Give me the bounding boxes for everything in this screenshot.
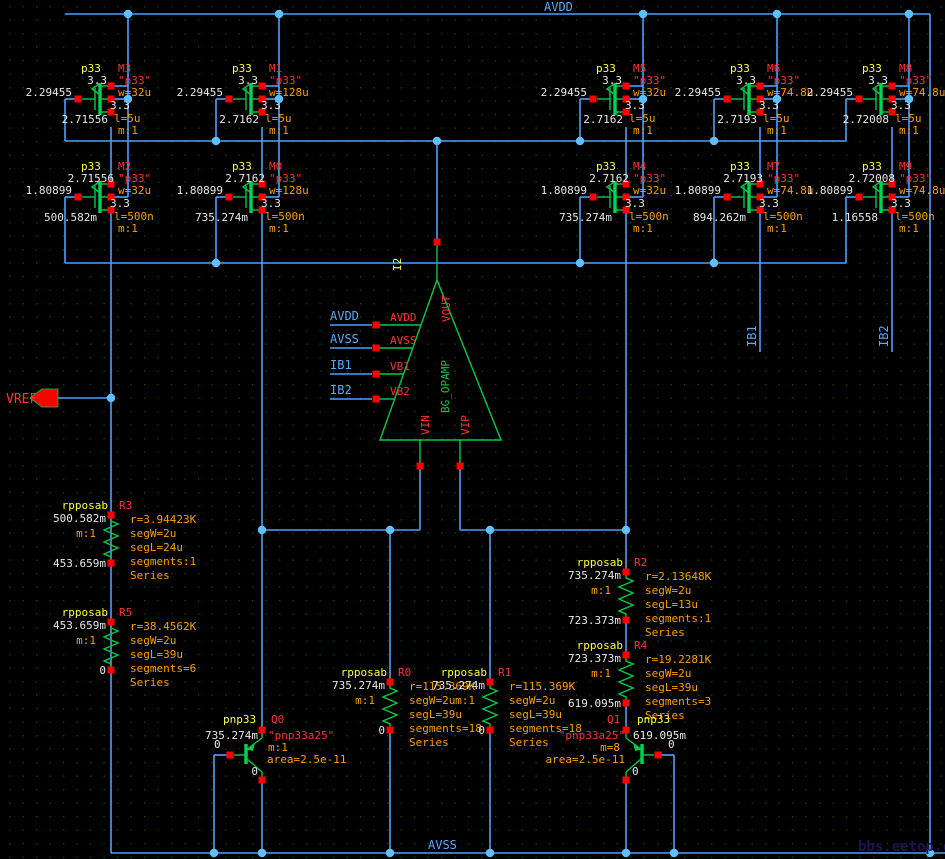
m-param: m:1 [633,124,653,137]
res-bot-pin[interactable] [623,617,630,624]
instance-label: R3 [119,499,132,512]
pin-label-vip: VIP [459,415,472,435]
v-annotation: 0 [99,664,106,677]
collector-pin[interactable] [259,777,266,784]
segments-param: segments:1 [645,612,711,625]
segl-param: segL=39u [409,708,462,721]
v-annotation: 3.3 [87,74,107,87]
r-param: r=38.4562K [130,620,197,633]
base-v-annotation: 0 [214,738,221,751]
gate-v-annotation: 1.80899 [541,184,587,197]
source-pin[interactable] [259,83,266,90]
pin-label-vb2: VB2 [390,385,410,398]
instance-label: R2 [634,556,647,569]
m-param: m:1 [118,222,138,235]
instance-label: R1 [498,666,511,679]
gate-pin[interactable] [856,96,863,103]
m-param: m:1 [767,222,787,235]
w-param: w=32u [633,86,666,99]
segw-param: segW=2u [645,667,691,680]
instance-label: Q0 [271,713,284,726]
segments-param: segments=3 [645,695,711,708]
net-label-ib2: IB2 [330,383,352,397]
w-param: w=128u [269,184,309,197]
cell-label: BG_OPAMP [439,360,452,413]
instance-label: R0 [398,666,411,679]
gate-pin[interactable] [724,96,731,103]
avdd-rail-label: AVDD [544,0,573,14]
vref-pin[interactable]: VREF [6,389,58,407]
cell-label: rpposab [441,666,487,679]
v-annotation: 735.274m [432,679,485,692]
res-bot-pin[interactable] [487,727,494,734]
r-param: r=19.2281K [645,653,712,666]
vb2-pin[interactable] [373,396,380,403]
pin-label-vin: VIN [419,415,432,435]
segw-param: segW=2u [130,634,176,647]
res-top-pin[interactable] [108,512,115,519]
cell-label: rpposab [62,606,108,619]
v-annotation: 453.659m [53,557,106,570]
r-param: r=2.13648K [645,570,712,583]
gate-v-annotation: 1.80899 [177,184,223,197]
cell-label: rpposab [577,639,623,652]
w-param: w=32u [633,184,666,197]
segw-param: segW=2u [409,694,455,707]
m-param: m:1 [269,222,289,235]
base-v-annotation: 0 [668,738,675,751]
series-param: Series [130,569,170,582]
instance-label: I2 [391,258,404,271]
gate-v-annotation: 2.29455 [675,86,721,99]
net-label-avss: AVSS [330,332,359,346]
vout-pin[interactable] [434,239,441,246]
res-bot-pin[interactable] [108,667,115,674]
ib1-net-label: IB1 [745,325,759,347]
series-param: Series [509,736,549,749]
v-annotation: 2.7193 [723,172,763,185]
net-label-avdd: AVDD [330,309,359,323]
m-param: m:1 [591,667,611,680]
source-pin[interactable] [757,83,764,90]
m-param: m:1 [269,124,289,137]
drain-v-annotation: 1.16558 [832,211,878,224]
bulk-v-annotation: 3.3 [261,197,281,210]
segw-param: segW=2u [130,527,176,540]
m-param: m:1 [355,694,375,707]
drain-v-annotation: 2.7193 [717,113,757,126]
avss-rail-label: AVSS [428,838,457,852]
v-annotation: 3.3 [238,74,258,87]
res-top-pin[interactable] [108,619,115,626]
res-bot-pin[interactable] [108,560,115,567]
instance-label: R4 [634,639,648,652]
m-param: m:1 [76,527,96,540]
gate-pin[interactable] [590,96,597,103]
cell-label: pnp33 [637,713,670,726]
source-pin[interactable] [889,83,896,90]
m-param: m:1 [76,634,96,647]
v-annotation: 619.095m [633,729,686,742]
res-bot-pin[interactable] [387,727,394,734]
segl-param: segL=39u [130,648,183,661]
drain-v-annotation: 735.274m [559,211,612,224]
bulk-v-annotation: 3.3 [625,197,645,210]
area-param: area=2.5e-11 [546,753,625,766]
gate-pin[interactable] [856,194,863,201]
w-param: w=32u [118,86,151,99]
avss-pin[interactable] [373,345,380,352]
vref-label: VREF [6,392,37,407]
vip-pin[interactable] [457,463,464,470]
watermark: bbs.eetop.cn [858,839,945,855]
v-annotation: 723.373m [568,614,621,627]
gate-v-annotation: 2.29455 [26,86,72,99]
v-annotation: 723.373m [568,652,621,665]
res-top-pin[interactable] [387,679,394,686]
source-pin[interactable] [623,83,630,90]
m-param: m:1 [899,124,919,137]
pin-label-vb1: VB1 [390,360,410,373]
cell-label: rpposab [62,499,108,512]
v-annotation: 735.274m [568,569,621,582]
v-annotation: 0 [478,724,485,737]
v-annotation: 500.582m [53,512,106,525]
segments-param: segments=18 [409,722,482,735]
drain-v-annotation: 894.262m [693,211,746,224]
w-param: w=74.8u [899,184,945,197]
v-annotation: 0 [251,765,258,778]
gate-pin[interactable] [75,194,82,201]
bulk-v-annotation: 3.3 [110,197,130,210]
v-annotation: 619.095m [568,697,621,710]
segw-param: segW=2u [645,584,691,597]
series-param: Series [409,736,449,749]
instance-label: R5 [119,606,132,619]
v-annotation: 453.659m [53,619,106,632]
v-annotation: 2.7162 [225,172,265,185]
segl-param: segL=39u [645,681,698,694]
v-annotation: 0 [378,724,385,737]
collector-pin[interactable] [623,777,630,784]
v-annotation: 2.72008 [849,172,895,185]
v-annotation: 3.3 [736,74,756,87]
w-param: w=32u [118,184,151,197]
v-annotation: 3.3 [868,74,888,87]
cell-label: rpposab [341,666,387,679]
series-param: Series [645,626,685,639]
w-param: w=128u [269,86,309,99]
v-annotation: 735.274m [332,679,385,692]
base-pin[interactable] [227,752,234,759]
gate-v-annotation: 1.80899 [26,184,72,197]
vin-pin[interactable] [417,463,424,470]
res-top-pin[interactable] [623,652,630,659]
gate-pin[interactable] [590,194,597,201]
m-param: m:1 [591,584,611,597]
pin-label-avss: AVSS [390,334,417,347]
segments-param: segments:1 [130,555,196,568]
res-top-pin[interactable] [487,679,494,686]
series-param: Series [130,676,170,689]
segl-param: segL=24u [130,541,183,554]
emitter-pin[interactable] [259,727,266,734]
source-pin[interactable] [108,83,115,90]
gate-v-annotation: 2.29455 [177,86,223,99]
m-param: m:1 [118,124,138,137]
drain-v-annotation: 2.7162 [583,113,623,126]
schematic-svg: p33 M3 3.3 "p33" 2.29455 w=32u 3.3 2.715… [0,0,945,859]
gate-pin[interactable] [226,96,233,103]
gate-v-annotation: 2.29455 [541,86,587,99]
res-top-pin[interactable] [623,569,630,576]
ib2-net-label: IB2 [877,325,891,347]
gate-pin[interactable] [226,194,233,201]
r-param: r=115.369K [509,680,576,693]
v-annotation: 3.3 [602,74,622,87]
segw-param: segW=2u [509,694,555,707]
drain-v-annotation: 500.582m [44,211,97,224]
m-param: m:1 [455,694,475,707]
segments-param: segments=6 [130,662,196,675]
segl-param: segL=39u [509,708,562,721]
m-param: m:1 [633,222,653,235]
area-param: area=2.5e-11 [267,753,346,766]
bulk-v-annotation: 3.3 [891,197,911,210]
drain-v-annotation: 2.7162 [219,113,259,126]
gate-pin[interactable] [75,96,82,103]
gate-v-annotation: 2.29455 [807,86,853,99]
gate-v-annotation: 1.80899 [675,184,721,197]
cell-label: pnp33 [223,713,256,726]
m-param: m:1 [767,124,787,137]
segl-param: segL=13u [645,598,698,611]
instance-label: Q1 [607,713,620,726]
v-annotation: 0 [632,765,639,778]
net-label-ib1: IB1 [330,358,352,372]
v-annotation: 2.7162 [589,172,629,185]
cell-label: rpposab [577,556,623,569]
gate-v-annotation: 1.80899 [807,184,853,197]
res-bot-pin[interactable] [623,700,630,707]
avdd-pin[interactable] [373,322,380,329]
pin-label-avdd: AVDD [390,311,417,324]
drain-v-annotation: 2.72008 [843,113,889,126]
v-annotation: 2.71556 [68,172,114,185]
base-pin[interactable] [655,752,662,759]
pin-label-vout: VOUT [440,295,453,322]
m-param: m:1 [899,222,919,235]
r-param: r=3.94423K [130,513,197,526]
schematic-editor-canvas[interactable]: p33 M3 3.3 "p33" 2.29455 w=32u 3.3 2.715… [0,0,945,859]
drain-v-annotation: 735.274m [195,211,248,224]
bulk-v-annotation: 3.3 [759,197,779,210]
vb1-pin[interactable] [373,371,380,378]
gate-pin[interactable] [724,194,731,201]
drain-v-annotation: 2.71556 [62,113,108,126]
